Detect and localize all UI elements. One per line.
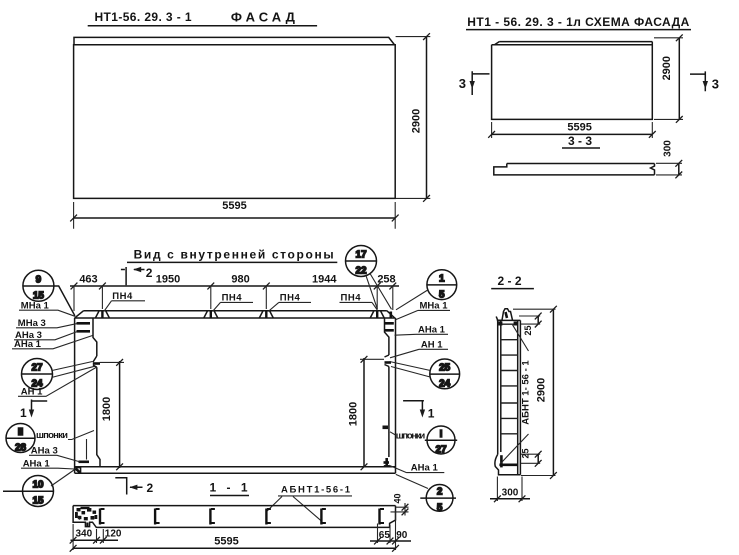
svg-text:300: 300	[663, 140, 674, 157]
svg-text:2900: 2900	[661, 56, 673, 80]
svg-text:25: 25	[520, 448, 530, 458]
svg-text:шпонки: шпонки	[396, 431, 426, 442]
svg-text:АН 1: АН 1	[421, 339, 443, 350]
svg-text:НТ1 - 56. 29. 3 - 1л СХЕМА ФАС: НТ1 - 56. 29. 3 - 1л СХЕМА ФАСАДА	[467, 15, 689, 29]
svg-text:2900: 2900	[536, 378, 548, 402]
svg-text:25: 25	[523, 325, 533, 335]
svg-text:1 - 1: 1 - 1	[210, 481, 248, 495]
svg-text:24: 24	[31, 379, 43, 390]
svg-text:25: 25	[439, 363, 451, 374]
svg-text:27: 27	[31, 363, 43, 374]
svg-text:1800: 1800	[101, 397, 113, 421]
svg-text:ФАСАД: ФАСАД	[231, 10, 298, 25]
svg-text:АБНТ 1- 56 - 1: АБНТ 1- 56 - 1	[521, 360, 532, 425]
svg-text:1: 1	[439, 273, 445, 284]
svg-text:МНа 1: МНа 1	[420, 300, 449, 311]
svg-text:2 - 2: 2 - 2	[497, 274, 521, 288]
svg-text:340: 340	[76, 529, 93, 540]
svg-text:17: 17	[355, 250, 367, 261]
svg-text:1: 1	[428, 407, 435, 421]
svg-text:65: 65	[379, 530, 391, 541]
svg-text:24: 24	[439, 379, 451, 390]
svg-text:1944: 1944	[312, 274, 337, 286]
svg-text:АНа 1: АНа 1	[411, 462, 439, 473]
svg-text:2: 2	[147, 481, 154, 495]
svg-text:1800: 1800	[348, 402, 360, 426]
svg-text:II: II	[18, 427, 24, 438]
svg-text:АБНТ1-56-1: АБНТ1-56-1	[281, 485, 351, 496]
svg-text:АНа 1: АНа 1	[23, 458, 51, 469]
svg-text:5595: 5595	[567, 122, 591, 134]
svg-text:10: 10	[32, 480, 44, 491]
svg-text:5: 5	[437, 503, 443, 514]
svg-text:258: 258	[377, 274, 395, 286]
svg-text:5595: 5595	[222, 200, 246, 212]
svg-text:9: 9	[36, 275, 42, 286]
svg-text:15: 15	[32, 496, 44, 507]
svg-text:120: 120	[105, 529, 122, 540]
svg-text:300: 300	[502, 487, 519, 498]
svg-text:шпонки: шпонки	[36, 430, 68, 441]
svg-text:463: 463	[79, 274, 97, 286]
svg-text:22: 22	[355, 266, 367, 277]
svg-text:3 - 3: 3 - 3	[568, 134, 592, 148]
svg-text:15: 15	[33, 291, 45, 302]
svg-text:3: 3	[459, 76, 466, 91]
svg-text:980: 980	[231, 274, 249, 286]
svg-text:27: 27	[435, 445, 447, 456]
svg-text:МНа 1: МНа 1	[21, 300, 50, 311]
svg-text:28: 28	[15, 443, 27, 454]
svg-text:АНа 1: АНа 1	[14, 339, 42, 350]
svg-text:90: 90	[396, 530, 408, 541]
svg-text:НТ1-56. 29. 3 - 1: НТ1-56. 29. 3 - 1	[95, 10, 192, 24]
svg-text:МНа 3: МНа 3	[18, 318, 46, 329]
svg-text:1: 1	[20, 406, 27, 420]
svg-text:5595: 5595	[214, 536, 238, 548]
svg-text:АНа 1: АНа 1	[418, 324, 446, 335]
svg-text:2: 2	[437, 487, 443, 498]
svg-text:I: I	[440, 429, 443, 440]
svg-text:Вид с внутренней стороны: Вид с внутренней стороны	[134, 248, 334, 262]
svg-text:3: 3	[712, 77, 719, 92]
svg-text:2900: 2900	[411, 109, 423, 133]
svg-text:5: 5	[439, 289, 445, 300]
svg-text:2: 2	[146, 266, 153, 280]
svg-text:1950: 1950	[156, 274, 180, 286]
svg-text:40: 40	[392, 493, 402, 503]
